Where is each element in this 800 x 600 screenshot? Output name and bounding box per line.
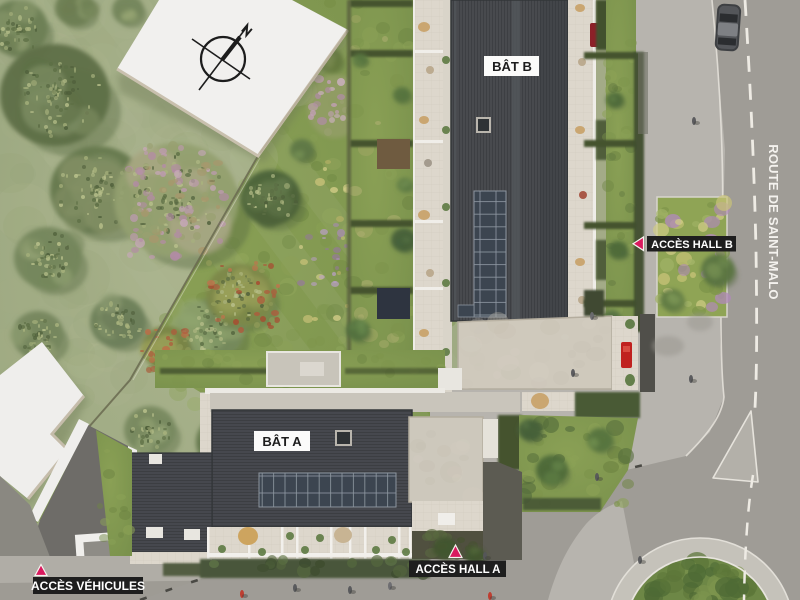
svg-text:ACCÈS HALL B: ACCÈS HALL B: [651, 238, 733, 251]
svg-text:ACCÈS VÉHICULES: ACCÈS VÉHICULES: [31, 578, 145, 593]
svg-text:BÂT A: BÂT A: [262, 434, 302, 449]
svg-text:ROUTE DE SAINT-MALO: ROUTE DE SAINT-MALO: [766, 144, 781, 299]
svg-text:ACCÈS HALL A: ACCÈS HALL A: [416, 563, 501, 576]
svg-text:BÂT B: BÂT B: [492, 59, 532, 74]
